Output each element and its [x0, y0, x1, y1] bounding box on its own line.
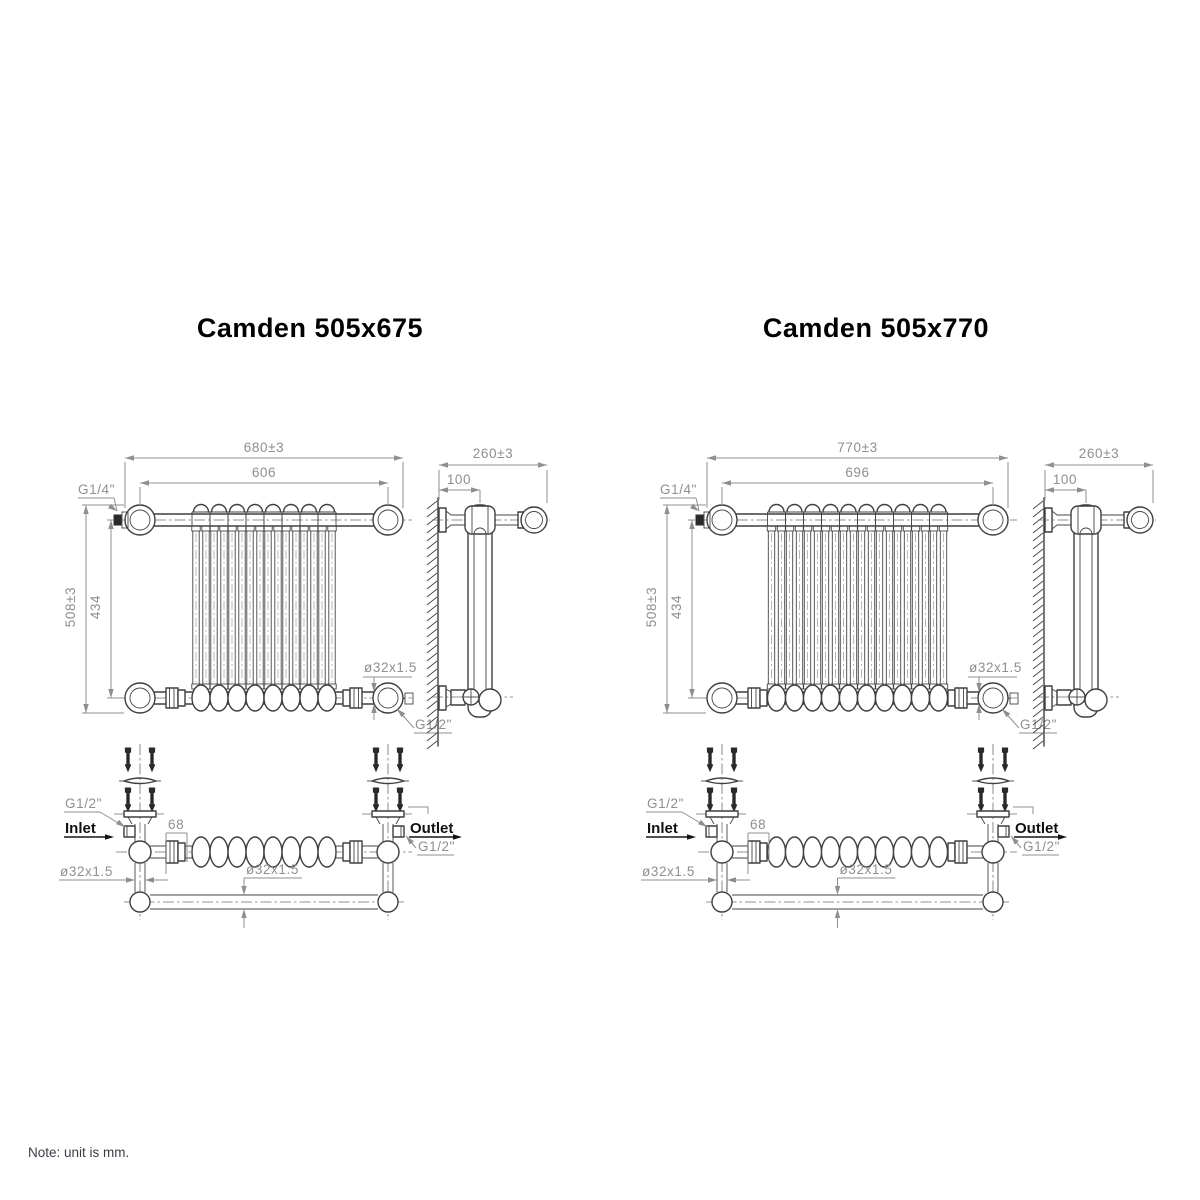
dim-overall-depth: 260±3	[1079, 446, 1119, 461]
fixing-screw-icon	[707, 748, 712, 771]
unit-0-side-view: 260±3100	[427, 446, 550, 749]
dimension-arrow-icon	[984, 480, 993, 485]
dimension-arrow-icon	[241, 909, 246, 918]
dimension-arrow-icon	[439, 487, 448, 492]
dimension-arrow-icon	[105, 834, 114, 839]
dimension-arrow-icon	[835, 886, 840, 895]
dim-overall-width: 770±3	[837, 440, 877, 455]
dim-union-width: 68	[168, 817, 184, 832]
dimension-arrow-icon	[664, 704, 669, 713]
dimension-arrow-icon	[83, 704, 88, 713]
dimension-arrow-icon	[1045, 487, 1054, 492]
unit-1-plan-view: G1/2"Inlet68OutletG1/2"ø32x1.5ø32x1.5	[641, 744, 1067, 928]
dimension-arrow-icon	[687, 834, 696, 839]
unit-0: Camden 505x675	[197, 313, 423, 343]
dim-union-width: 68	[750, 817, 766, 832]
label-vent-thread: G1/4"	[78, 482, 115, 497]
label-inlet: Inlet	[647, 820, 678, 837]
fixing-screw-icon	[397, 748, 402, 771]
dim-rail-tube: ø32x1.5	[246, 862, 299, 877]
dimension-arrow-icon	[707, 455, 716, 460]
dim-inner-height: 434	[88, 595, 103, 619]
dim-wall-to-column: 100	[1053, 472, 1077, 487]
air-vent-icon	[114, 515, 121, 525]
dimension-arrow-icon	[1144, 462, 1153, 467]
drawing-sheet: Camden 505x675680±3606508±3434G1/4"ø32x1…	[0, 0, 1200, 1200]
label-outlet-thread: G1/2"	[418, 839, 455, 854]
dimension-arrow-icon	[999, 455, 1008, 460]
dimension-arrow-icon	[538, 462, 547, 467]
fixing-screw-icon	[373, 748, 378, 771]
dim-riser-tube: ø32x1.5	[642, 864, 695, 879]
unit-1-front-view: 770±3696508±3434G1/4"ø32x1.5G1/2"	[644, 440, 1057, 733]
dimension-arrow-icon	[379, 480, 388, 485]
dimension-arrow-icon	[689, 520, 694, 529]
dimension-arrow-icon	[140, 480, 149, 485]
fixing-screw-icon	[125, 788, 130, 811]
dim-tube-size: ø32x1.5	[969, 660, 1022, 675]
fixing-screw-icon	[397, 788, 402, 811]
label-outlet-thread: G1/2"	[1023, 839, 1060, 854]
dim-wall-to-column: 100	[447, 472, 471, 487]
label-inlet-thread: G1/2"	[647, 796, 684, 811]
fixing-screw-icon	[373, 788, 378, 811]
dimension-arrow-icon	[835, 909, 840, 918]
dimension-arrow-icon	[471, 487, 480, 492]
fixing-screw-icon	[149, 748, 154, 771]
dimension-arrow-icon	[145, 877, 154, 882]
label-inlet: Inlet	[65, 820, 96, 837]
unit-1: Camden 505x770	[763, 313, 989, 343]
fixing-screw-icon	[731, 788, 736, 811]
fixing-screw-icon	[125, 748, 130, 771]
air-vent-icon	[696, 515, 703, 525]
label-drain-thread: G1/2"	[1020, 717, 1057, 732]
dim-inner-height: 434	[669, 595, 684, 619]
dim-rail-pitch: 696	[845, 465, 869, 480]
dim-overall-depth: 260±3	[473, 446, 513, 461]
dimension-arrow-icon	[708, 877, 717, 882]
dim-rail-pitch: 606	[252, 465, 276, 480]
label-outlet: Outlet	[410, 820, 453, 837]
unit-0-front-view: 680±3606508±3434G1/4"ø32x1.5G1/2"	[63, 440, 452, 733]
unit-title: Camden 505x675	[197, 313, 423, 343]
technical-drawing: Camden 505x675680±3606508±3434G1/4"ø32x1…	[0, 0, 1200, 1200]
fixing-screw-icon	[1002, 748, 1007, 771]
label-inlet-thread: G1/2"	[65, 796, 102, 811]
dimension-arrow-icon	[394, 455, 403, 460]
dimension-arrow-icon	[1077, 487, 1086, 492]
dimension-arrow-icon	[125, 455, 134, 460]
dimension-arrow-icon	[689, 689, 694, 698]
dimension-arrow-icon	[241, 886, 246, 895]
dimension-arrow-icon	[727, 877, 736, 882]
dimension-arrow-icon	[126, 877, 135, 882]
dimension-arrow-icon	[439, 462, 448, 467]
label-vent-thread: G1/4"	[660, 482, 697, 497]
dimension-arrow-icon	[108, 520, 113, 529]
unit-title: Camden 505x770	[763, 313, 989, 343]
fixing-screw-icon	[149, 788, 154, 811]
fixing-screw-icon	[1002, 788, 1007, 811]
dimension-arrow-icon	[1045, 462, 1054, 467]
fixing-screw-icon	[978, 748, 983, 771]
unit-1-side-view: 260±3100	[1033, 446, 1156, 749]
dim-overall-width: 680±3	[244, 440, 284, 455]
dimension-arrow-icon	[722, 480, 731, 485]
dim-overall-height: 508±3	[63, 587, 78, 627]
fixing-screw-icon	[707, 788, 712, 811]
dimension-arrow-icon	[108, 689, 113, 698]
dim-overall-height: 508±3	[644, 587, 659, 627]
dim-tube-size: ø32x1.5	[364, 660, 417, 675]
note-text: Note: unit is mm.	[28, 1145, 129, 1160]
dim-rail-tube: ø32x1.5	[840, 862, 893, 877]
label-outlet: Outlet	[1015, 820, 1058, 837]
dim-riser-tube: ø32x1.5	[60, 864, 113, 879]
fixing-screw-icon	[731, 748, 736, 771]
dimension-arrow-icon	[83, 505, 88, 514]
fixing-screw-icon	[978, 788, 983, 811]
dimension-arrow-icon	[664, 505, 669, 514]
unit-0-plan-view: G1/2"Inlet68OutletG1/2"ø32x1.5ø32x1.5	[59, 744, 462, 928]
